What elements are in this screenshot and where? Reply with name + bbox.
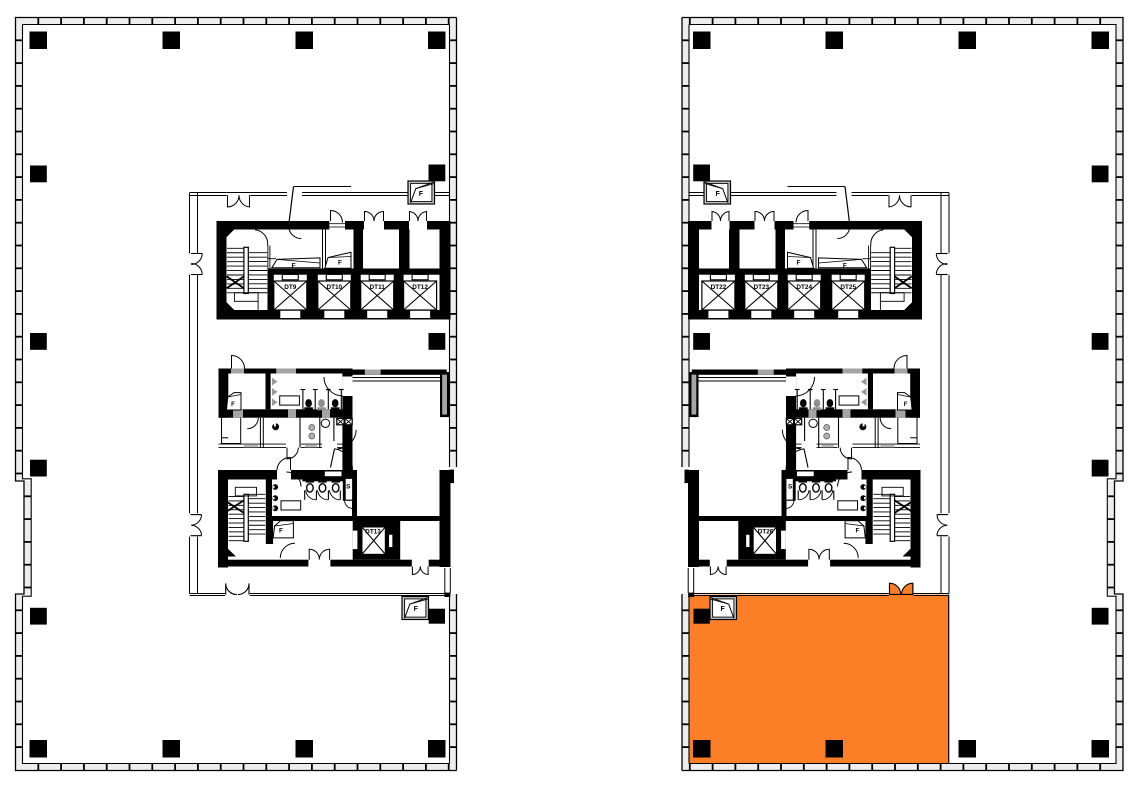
svg-text:F: F [419,191,424,198]
svg-text:DT10: DT10 [326,284,342,291]
svg-text:F: F [843,263,847,270]
svg-text:DT13: DT13 [365,529,381,536]
svg-text:DT12: DT12 [412,284,428,291]
svg-text:F: F [292,263,296,270]
svg-text:F: F [279,527,283,534]
svg-text:F: F [856,527,860,534]
svg-text:F: F [231,402,235,408]
svg-text:F: F [338,259,342,266]
svg-text:DT25: DT25 [840,284,856,291]
svg-text:S: S [346,484,351,491]
svg-text:DT22: DT22 [711,284,727,291]
svg-text:F: F [904,402,908,408]
svg-text:F: F [414,606,419,613]
svg-text:DT26: DT26 [758,529,774,536]
svg-text:DT11: DT11 [370,284,386,291]
svg-text:F: F [715,191,720,198]
svg-text:DT9: DT9 [284,284,297,291]
svg-text:DT24: DT24 [796,284,812,291]
svg-text:F: F [721,606,726,613]
svg-text:S: S [788,484,793,491]
svg-text:DT23: DT23 [753,284,769,291]
svg-text:F: F [797,259,801,266]
